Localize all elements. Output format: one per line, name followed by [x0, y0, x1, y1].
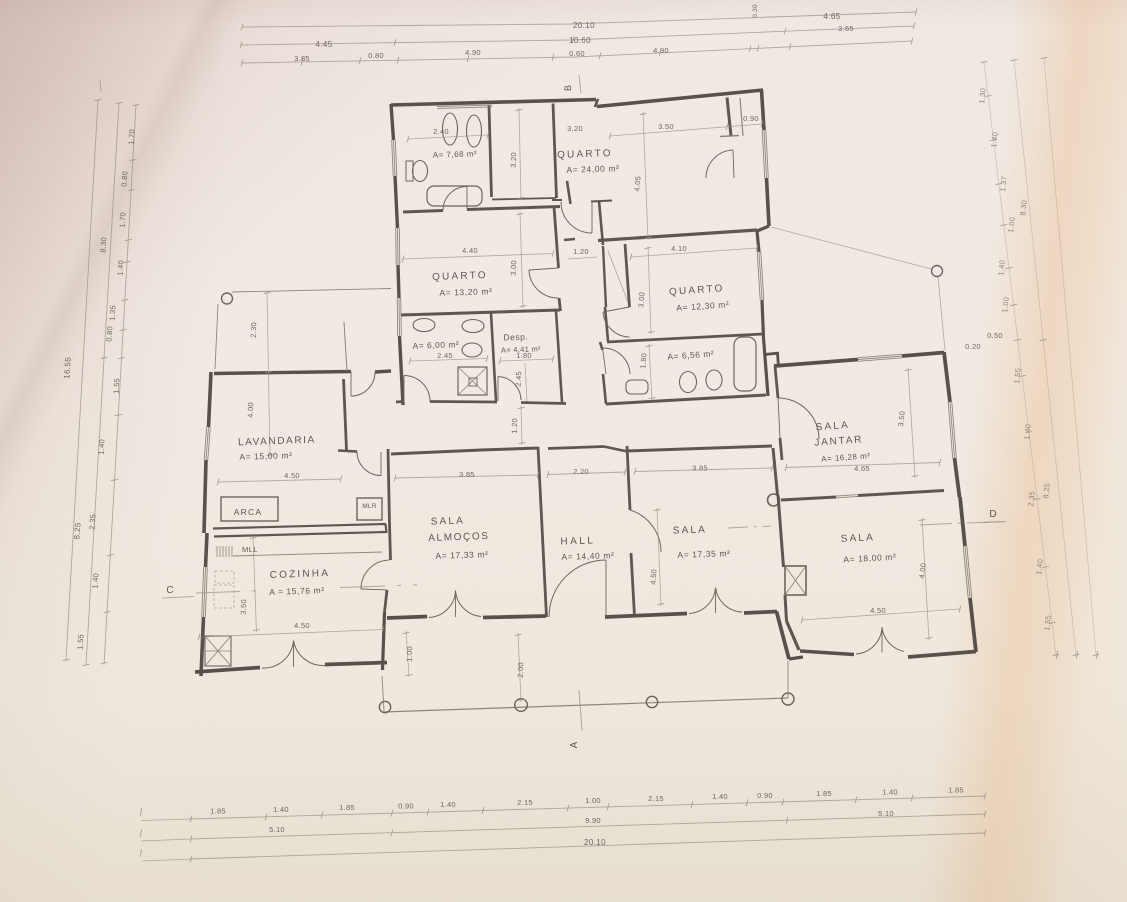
svg-text:Desp.: Desp. [503, 332, 528, 343]
svg-text:SALA: SALA [431, 515, 466, 527]
svg-text:SALA: SALA [840, 532, 875, 545]
svg-text:9.90: 9.90 [585, 816, 601, 825]
svg-text:20.10: 20.10 [573, 21, 595, 30]
svg-text:2.00: 2.00 [516, 662, 526, 678]
svg-text:2.45: 2.45 [514, 371, 524, 387]
svg-text:0.80: 0.80 [368, 51, 384, 60]
svg-text:0.90: 0.90 [398, 801, 414, 810]
svg-text:COZINHA: COZINHA [270, 568, 331, 581]
svg-text:A= 13,20 m²: A= 13,20 m² [439, 286, 492, 298]
svg-text:2.40: 2.40 [433, 127, 449, 136]
svg-text:A= 6,00 m²: A= 6,00 m² [412, 339, 459, 351]
svg-text:A= 18,00 m²: A= 18,00 m² [843, 552, 897, 565]
svg-text:0.50: 0.50 [987, 331, 1003, 340]
svg-text:A= 17,33 m²: A= 17,33 m² [435, 549, 488, 561]
svg-text:0.90: 0.90 [743, 114, 759, 123]
svg-text:8.25: 8.25 [72, 522, 82, 540]
svg-text:A= 15,00 m²: A= 15,00 m² [239, 450, 292, 462]
svg-text:2.35: 2.35 [1026, 490, 1037, 507]
svg-text:0.80: 0.80 [104, 326, 114, 342]
svg-text:QUARTO: QUARTO [669, 283, 725, 298]
svg-text:0.60: 0.60 [569, 49, 585, 58]
svg-text:4.50: 4.50 [284, 471, 300, 480]
svg-text:2.35: 2.35 [87, 514, 97, 530]
svg-text:1.80: 1.80 [638, 353, 648, 370]
svg-text:3.20: 3.20 [509, 152, 519, 168]
svg-text:4.50: 4.50 [870, 606, 886, 615]
svg-text:5.10: 5.10 [878, 809, 894, 818]
svg-text:A= 24,00 m²: A= 24,00 m² [566, 163, 619, 175]
svg-text:1.40: 1.40 [996, 259, 1007, 276]
svg-text:3.50: 3.50 [896, 410, 907, 427]
svg-text:1.40: 1.40 [115, 260, 125, 276]
svg-text:3.85: 3.85 [692, 464, 708, 473]
svg-text:1.40: 1.40 [1034, 558, 1045, 575]
svg-text:QUARTO: QUARTO [557, 148, 613, 161]
svg-text:1.40: 1.40 [1022, 423, 1033, 440]
svg-text:A: A [569, 741, 580, 748]
svg-text:1.40: 1.40 [96, 439, 106, 455]
svg-text:A= 7,68 m²: A= 7,68 m² [433, 149, 478, 160]
svg-text:3.65: 3.65 [838, 24, 854, 33]
svg-text:MLL: MLL [242, 545, 258, 554]
svg-text:2.30: 2.30 [249, 322, 259, 338]
svg-text:4.90: 4.90 [465, 48, 481, 57]
svg-text:ALMOÇOS: ALMOÇOS [428, 531, 490, 544]
svg-text:1.40: 1.40 [712, 792, 728, 801]
svg-text:2.45: 2.45 [437, 351, 453, 360]
svg-text:1.55: 1.55 [1012, 367, 1023, 384]
svg-text:SALA: SALA [673, 524, 708, 536]
svg-text:2.20: 2.20 [573, 467, 589, 476]
svg-text:4.40: 4.40 [462, 246, 478, 255]
svg-text:SALA: SALA [815, 420, 850, 433]
svg-text:1.40: 1.40 [989, 131, 1000, 148]
svg-text:1.85: 1.85 [816, 789, 832, 798]
svg-text:4.00: 4.00 [917, 562, 928, 579]
svg-text:0.90: 0.90 [757, 791, 773, 800]
svg-text:4.05: 4.05 [632, 176, 642, 193]
svg-text:LAVANDARIA: LAVANDARIA [238, 435, 316, 449]
svg-text:0.20: 0.20 [965, 342, 981, 351]
svg-text:8.30: 8.30 [98, 237, 108, 253]
svg-text:QUARTO: QUARTO [432, 270, 488, 283]
svg-text:1.35: 1.35 [107, 305, 117, 321]
svg-text:1.70: 1.70 [126, 129, 136, 145]
svg-text:1.55: 1.55 [1042, 614, 1053, 631]
svg-text:1.40: 1.40 [90, 573, 100, 589]
svg-text:3.00: 3.00 [636, 292, 646, 309]
svg-text:4.65: 4.65 [854, 464, 870, 473]
svg-text:1.00: 1.00 [1006, 216, 1017, 233]
svg-text:4.65: 4.65 [823, 12, 840, 21]
svg-text:1.85: 1.85 [948, 785, 964, 794]
svg-text:10.60: 10.60 [569, 36, 591, 45]
svg-text:A= 6,56 m²: A= 6,56 m² [667, 348, 714, 361]
svg-text:4.10: 4.10 [671, 244, 687, 253]
svg-text:4.50: 4.50 [648, 569, 658, 585]
svg-text:HALL: HALL [560, 535, 595, 547]
svg-text:3.00: 3.00 [509, 260, 519, 276]
svg-text:A= 16,28 m²: A= 16,28 m² [821, 451, 871, 463]
svg-text:1.00: 1.00 [585, 796, 601, 805]
svg-text:1.70: 1.70 [117, 212, 127, 228]
svg-text:4.00: 4.00 [246, 402, 256, 418]
svg-text:1.55: 1.55 [111, 378, 121, 394]
svg-text:8.30: 8.30 [1018, 199, 1029, 216]
svg-text:1.00: 1.00 [405, 646, 415, 662]
svg-text:5.10: 5.10 [269, 825, 285, 834]
svg-text:4.90: 4.90 [653, 46, 669, 55]
svg-text:1.37: 1.37 [998, 175, 1009, 192]
svg-text:20.10: 20.10 [584, 838, 606, 847]
svg-text:A= 14,40 m²: A= 14,40 m² [561, 550, 614, 562]
svg-text:0.80: 0.80 [119, 171, 129, 187]
svg-text:8.25: 8.25 [1041, 482, 1052, 499]
svg-text:D: D [989, 509, 996, 520]
svg-text:B: B [563, 85, 573, 91]
svg-text:3.85: 3.85 [294, 54, 310, 63]
svg-text:4.45: 4.45 [315, 40, 332, 49]
svg-text:4.50: 4.50 [294, 621, 310, 630]
svg-text:3.20: 3.20 [567, 124, 583, 133]
svg-text:2.15: 2.15 [517, 798, 533, 807]
svg-text:1.40: 1.40 [882, 787, 898, 796]
svg-text:1.30: 1.30 [977, 87, 988, 104]
svg-text:ARCA: ARCA [234, 507, 262, 517]
svg-text:JANTAR: JANTAR [814, 434, 864, 448]
svg-text:1.20: 1.20 [510, 418, 520, 434]
svg-text:MLR: MLR [362, 503, 377, 510]
svg-text:A= 12,30 m²: A= 12,30 m² [676, 299, 730, 313]
svg-text:3.85: 3.85 [459, 470, 475, 479]
svg-text:1.85: 1.85 [339, 803, 355, 812]
svg-text:1.20: 1.20 [573, 247, 589, 256]
svg-text:3.50: 3.50 [239, 599, 249, 615]
svg-text:1.55: 1.55 [75, 634, 85, 650]
svg-text:3.50: 3.50 [658, 122, 674, 131]
svg-text:C: C [166, 585, 173, 596]
svg-text:1.85: 1.85 [210, 807, 226, 816]
svg-text:A= 4,41 m²: A= 4,41 m² [501, 344, 541, 354]
svg-text:2.15: 2.15 [648, 794, 664, 803]
svg-text:A = 15,76 m²: A = 15,76 m² [269, 585, 325, 597]
svg-text:0.30: 0.30 [752, 4, 759, 18]
svg-text:1.00: 1.00 [1000, 296, 1011, 313]
svg-text:1.40: 1.40 [440, 800, 456, 809]
svg-text:A= 17,35 m²: A= 17,35 m² [677, 548, 730, 560]
svg-text:16.55: 16.55 [62, 356, 73, 379]
svg-text:1.40: 1.40 [273, 805, 289, 814]
